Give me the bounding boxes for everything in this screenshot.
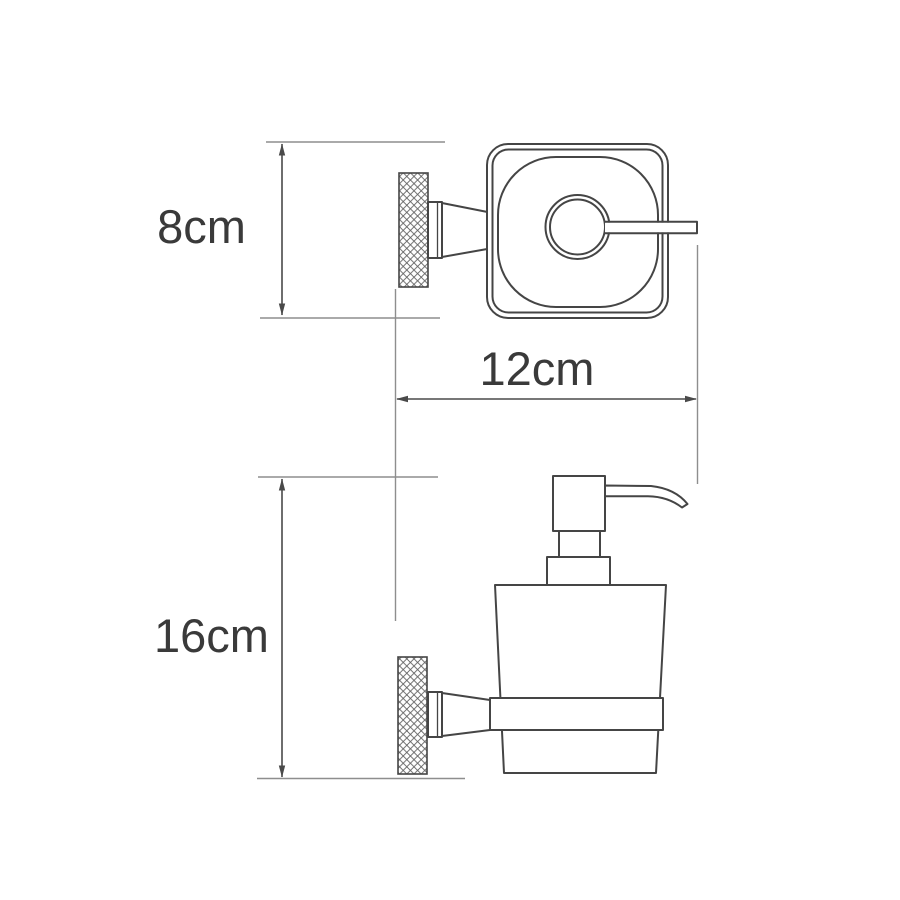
- dim-8cm-arrow-down-icon: [279, 304, 285, 316]
- side-pump-neck: [559, 531, 600, 557]
- dim-16cm-label: 16cm: [154, 609, 269, 662]
- side-wall-plate: [398, 657, 427, 774]
- side-spout: [605, 486, 688, 508]
- top-mount-cone: [442, 203, 490, 257]
- top-wall-plate: [399, 173, 428, 287]
- side-pump-head: [553, 476, 605, 531]
- dim-8cm-label: 8cm: [157, 200, 246, 253]
- dim-16cm-arrow-up-icon: [279, 479, 285, 491]
- side-cup-body: [495, 585, 666, 773]
- dim-12cm-arrow-left-icon: [396, 396, 408, 402]
- top-view: [399, 144, 697, 318]
- top-mount-flange: [428, 202, 442, 258]
- side-mount-cone: [442, 693, 490, 736]
- side-collar: [547, 557, 610, 585]
- side-view: [398, 476, 688, 774]
- dim-8cm-arrow-up-icon: [279, 144, 285, 156]
- dim-16cm-arrow-down-icon: [279, 766, 285, 778]
- side-holder-ring: [490, 698, 663, 730]
- side-mount-flange: [428, 692, 442, 737]
- drawing-page: 8cm 12cm 16cm: [0, 0, 900, 900]
- technical-drawing-canvas: 8cm 12cm 16cm: [0, 0, 900, 900]
- dim-12cm-label: 12cm: [480, 342, 595, 395]
- top-spout-fill: [605, 223, 697, 233]
- dim-12cm-arrow-right-icon: [685, 396, 697, 402]
